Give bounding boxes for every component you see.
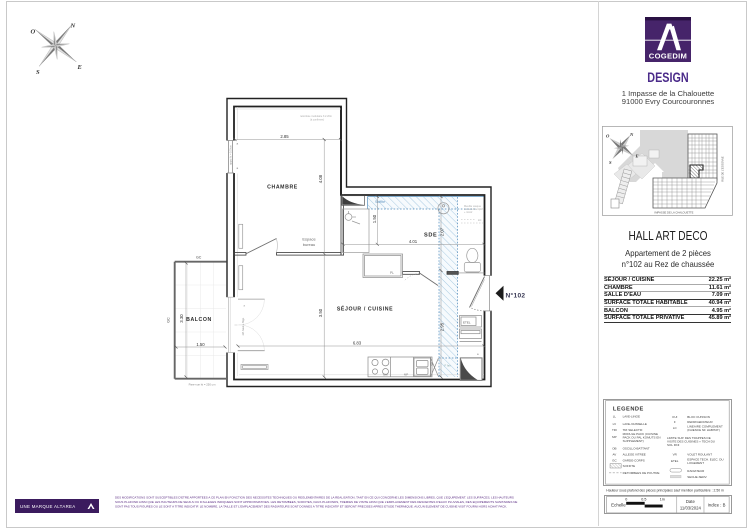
svg-text:S: S	[36, 69, 40, 76]
svg-text:LEGENDE: LEGENDE	[613, 407, 644, 413]
svg-text:LV: LV	[613, 422, 616, 426]
svg-text:LAVE-VAISSELLE: LAVE-VAISSELLE	[623, 422, 647, 426]
svg-text:0.5: 0.5	[641, 497, 646, 501]
svg-text:Espace: Espace	[302, 237, 316, 242]
svg-text:REFRIGERATEUR: REFRIGERATEUR	[687, 420, 713, 424]
svg-text:2.85: 2.85	[280, 134, 289, 139]
svg-text:ETEL: ETEL	[671, 459, 679, 463]
svg-text:F fav: F fav	[445, 364, 452, 368]
svg-text:a: a	[244, 304, 246, 308]
svg-text:N: N	[629, 132, 634, 137]
svg-text:RADIATEUR: RADIATEUR	[687, 469, 705, 473]
svg-text:E: E	[77, 64, 83, 71]
svg-text:a: a	[477, 352, 479, 356]
svg-text:N: N	[70, 23, 76, 30]
svg-text:Hauteur sous plafond des pièce: Hauteur sous plafond des pièces principa…	[606, 488, 724, 492]
svg-text:4.01: 4.01	[409, 239, 418, 244]
svg-text:4.08: 4.08	[318, 174, 323, 183]
svg-text:LAVE-LINGE: LAVE-LINGE	[623, 415, 640, 419]
svg-text:AV: AV	[612, 452, 616, 456]
svg-text:LC: LC	[478, 218, 481, 222]
svg-text:bureau: bureau	[303, 242, 315, 247]
svg-text:O: O	[31, 29, 36, 36]
svg-text:OB: OB	[612, 447, 616, 451]
svg-text:3.50: 3.50	[318, 308, 323, 317]
svg-text:PL: PL	[390, 271, 394, 275]
svg-text:UNE MARQUE ALTAREA: UNE MARQUE ALTAREA	[20, 504, 76, 509]
svg-text:RUE DE L'ESSONNE: RUE DE L'ESSONNE	[721, 156, 725, 181]
svg-text:CUI: CUI	[383, 372, 388, 376]
svg-text:MP: MP	[404, 372, 408, 376]
svg-text:SECHE-SERV.: SECHE-SERV.	[687, 475, 707, 479]
svg-text:Pare-vue ht = 250 cm: Pare-vue ht = 250 cm	[189, 382, 216, 386]
svg-text:réf. haut + frigo: réf. haut + frigo	[241, 317, 245, 335]
svg-text:1m: 1m	[660, 497, 665, 501]
svg-text:11/03/2024: 11/03/2024	[680, 505, 702, 510]
svg-text:SOFFITE: SOFFITE	[623, 464, 636, 468]
svg-text:2.95: 2.95	[440, 322, 445, 331]
svg-text:N°102: N°102	[506, 292, 526, 300]
svg-text:DES MODIFICATIONS SONT SUSCEPT: DES MODIFICATIONS SONT SUSCEPTIBLES D'ET…	[115, 496, 514, 500]
svg-text:VOLET ROULANT: VOLET ROULANT	[687, 453, 712, 457]
svg-text:1.50: 1.50	[196, 342, 205, 347]
svg-text:GC: GC	[196, 256, 202, 260]
svg-text:OSCILLO-BATTANT: OSCILLO-BATTANT	[623, 447, 650, 451]
svg-text:(FAIENCE NF HABITAT): (FAIENCE NF HABITAT)	[687, 428, 720, 432]
svg-text:Indice : B: Indice : B	[708, 502, 726, 507]
svg-text:(à confirmer): (à confirmer)	[310, 119, 324, 122]
svg-text:TRI: TRI	[612, 428, 617, 432]
svg-text:IMPASSE DE LA CHALOUETTE: IMPASSE DE LA CHALOUETTE	[655, 211, 694, 215]
svg-text:GARDE-CORPS: GARDE-CORPS	[623, 458, 645, 462]
svg-text:BLOC CUISSON: BLOC CUISSON	[687, 415, 710, 419]
svg-text:a: a	[237, 142, 239, 146]
svg-text:a: a	[237, 166, 239, 170]
svg-text:CUI: CUI	[672, 415, 677, 419]
svg-text:1.50: 1.50	[372, 214, 377, 223]
svg-text:Soffite: Soffite	[375, 200, 385, 204]
svg-text:appui ht = 100cm: appui ht = 100cm	[229, 145, 233, 165]
svg-text:2.07: 2.07	[440, 227, 445, 236]
svg-text:SÉJOUR / CUISINE: SÉJOUR / CUISINE	[337, 304, 393, 312]
svg-text:ETEL: ETEL	[463, 321, 471, 325]
svg-text:S: S	[609, 160, 612, 165]
svg-text:E: E	[635, 154, 639, 159]
svg-text:6.83: 6.83	[353, 341, 362, 346]
svg-text:F: F	[674, 420, 676, 424]
svg-text:SDE: SDE	[424, 233, 437, 239]
svg-text:SOUS PLAFOND AINSI QUE LES HAU: SOUS PLAFOND AINSI QUE LES HAUTEURS DE S…	[115, 500, 517, 504]
svg-text:GC: GC	[167, 317, 171, 323]
svg-text:SONT PAS TOUS FIGURES OU LE SO: SONT PAS TOUS FIGURES OU LE SONT A TITRE…	[115, 504, 507, 508]
svg-text:Date: Date	[686, 498, 696, 503]
svg-text:RETOMBEES DE POUTRE: RETOMBEES DE POUTRE	[623, 471, 660, 475]
svg-text:COGEDIM: COGEDIM	[649, 52, 687, 61]
svg-text:ALLEGE VITREE: ALLEGE VITREE	[623, 452, 646, 456]
svg-text:3.30: 3.30	[179, 314, 184, 323]
svg-text:CHAMBRE: CHAMBRE	[267, 184, 298, 190]
svg-text:LL: LL	[613, 415, 617, 419]
svg-text:BALCON: BALCON	[186, 317, 212, 323]
svg-text:SUPPLEMENT): SUPPLEMENT)	[623, 439, 644, 443]
svg-text:MP: MP	[612, 435, 616, 439]
svg-text:+ miroir: + miroir	[464, 211, 473, 214]
svg-text:SOL FINI: SOL FINI	[667, 443, 679, 447]
svg-text:LOGEMENT: LOGEMENT	[687, 461, 704, 465]
